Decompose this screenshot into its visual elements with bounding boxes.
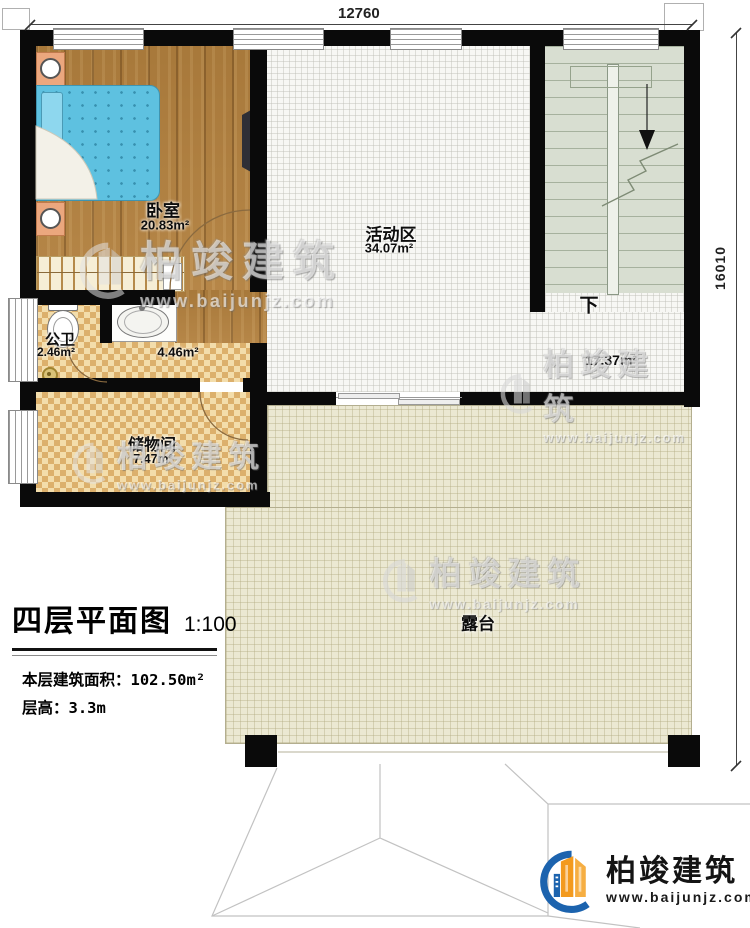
- wall-mid-vertical: [250, 343, 267, 507]
- wall-stair-west: [530, 30, 545, 312]
- company-name: 柏竣建筑: [606, 857, 750, 887]
- window: [8, 298, 38, 382]
- plan-title: 四层平面图: [12, 596, 172, 640]
- terrace-column: [668, 735, 700, 767]
- terrace-label: 露台: [461, 610, 495, 635]
- floor-area-label: 本层建筑面积：: [22, 672, 131, 689]
- sink-basin-inner: [124, 310, 162, 334]
- bedroom-area: 20.83m²: [141, 218, 189, 233]
- wall-bath-partition: [100, 305, 112, 343]
- title-block: 四层平面图 1:100 本层建筑面积：102.50m² 层高：3.3m: [12, 596, 237, 718]
- terrace-floor-lower: [225, 507, 692, 744]
- title-rule-thick: [12, 648, 217, 651]
- hallway-floor: [175, 290, 267, 343]
- wall-bedroom-divider: [250, 46, 267, 292]
- wall-left-upper: [20, 30, 36, 300]
- floor-height-label: 层高：: [22, 700, 69, 717]
- stair-down-label: 下: [579, 291, 598, 318]
- company-logo-icon: [536, 846, 600, 916]
- company-logo: 柏竣建筑 www.baijunjz.com: [536, 846, 750, 916]
- hall-area: 17.37m²: [585, 352, 637, 368]
- wall-bath-storage-stub: [243, 378, 267, 392]
- window: [390, 28, 462, 50]
- activity-area: 34.07m²: [365, 241, 413, 256]
- terrace-column: [245, 735, 277, 767]
- table-lamp-icon: [40, 208, 61, 229]
- wall-bath-storage: [20, 378, 200, 392]
- activity-floor: [265, 46, 530, 392]
- dimension-line-top: [30, 24, 692, 25]
- pillow: [41, 92, 63, 144]
- stair-landing-outline: [570, 66, 652, 88]
- window: [53, 28, 144, 50]
- dimension-right-value: 16010: [712, 246, 728, 290]
- stair-stringer: [607, 64, 619, 295]
- floor-drain-dot: [47, 372, 51, 376]
- floor-height-value: 3.3m: [69, 699, 106, 717]
- title-rule-thin: [12, 655, 217, 656]
- wall-right: [684, 30, 700, 407]
- company-url: www.baijunjz.com: [606, 889, 750, 905]
- dimension-line-right: [736, 33, 737, 766]
- pillow: [41, 146, 63, 196]
- window-sill-outline: [664, 3, 704, 31]
- terrace-floor-upper: [267, 405, 692, 509]
- sliding-door-panel: [398, 399, 460, 405]
- wall-activity-south-west: [250, 392, 336, 405]
- dimension-top-value: 12760: [338, 5, 380, 22]
- window-sill-outline: [2, 8, 30, 30]
- window: [233, 28, 324, 50]
- plan-scale: 1:100: [184, 613, 237, 637]
- switch-panel: [163, 263, 182, 290]
- floor-area-value: 102.50m²: [131, 671, 206, 689]
- floor-plan-canvas: 12760 16010: [0, 0, 750, 928]
- faucet-icon: [139, 305, 145, 311]
- window: [8, 410, 38, 484]
- wall-storage-south: [20, 492, 270, 507]
- table-lamp-icon: [40, 58, 61, 79]
- wash-area: 4.46m²: [157, 345, 198, 360]
- wall-activity-south-east: [460, 392, 700, 405]
- storage-area: 7.47m²: [133, 452, 173, 466]
- wall-bedroom-south: [20, 290, 175, 305]
- sliding-door-panel: [338, 393, 400, 399]
- window: [563, 28, 659, 50]
- bath-area: 2.46m²: [37, 345, 75, 359]
